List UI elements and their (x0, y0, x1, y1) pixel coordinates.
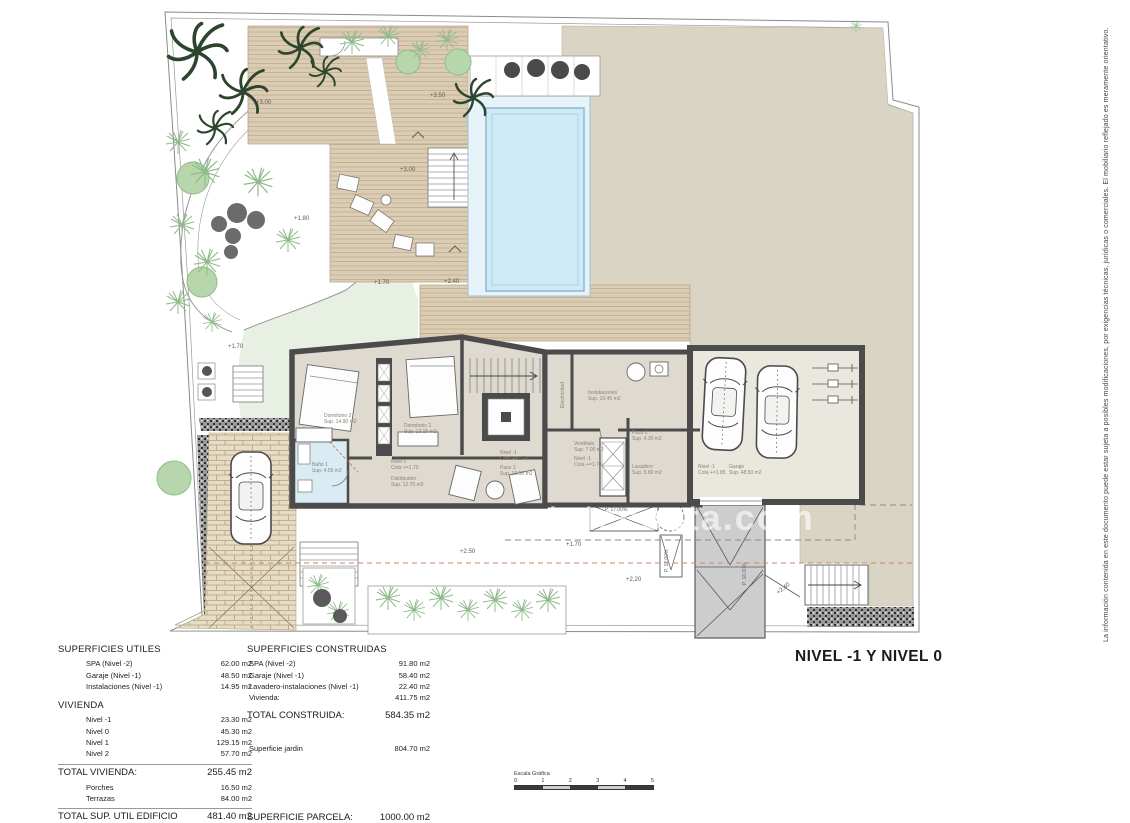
table-row: Superficie jardin804.70 m2 (247, 743, 430, 754)
scale-tick: 0 (514, 778, 517, 784)
table-row: SPA (Nivel -2)91.80 m2 (247, 658, 430, 669)
table-row: Nivel 1129.15 m2 (58, 737, 252, 748)
table-title: SUPERFICIES UTILES (58, 644, 252, 655)
elevation-label: +1.70 (374, 280, 389, 286)
room-label-instalaciones: InstalacionesSup. 10.45 m2 (588, 390, 621, 402)
table-total-row: TOTAL VIVIENDA:255.45 m2 (58, 764, 252, 778)
table-superficies-construidas: SUPERFICIES CONSTRUIDAS SPA (Nivel -2)91… (247, 644, 430, 823)
scale-bar-label: Escala Gráfica (514, 771, 654, 777)
page-title: NIVEL -1 Y NIVEL 0 (795, 648, 942, 666)
elevation-label: +3.00 (400, 167, 415, 173)
table-row: Garaje (Nivel -1)48.50 m2 (58, 669, 252, 680)
table-row: Instalaciones (Nivel -1)14.95 m2 (58, 681, 252, 692)
table-section-title: VIVIENDA (58, 700, 252, 711)
table-row: Nivel 045.30 m2 (58, 726, 252, 737)
room-label-dormitorio-1: Dormitorio 1Sup. 13.15 m2 (404, 423, 437, 435)
room-label-lavadero: LavaderoSup. 5.80 m2 (632, 464, 662, 476)
scale-tick: 3 (596, 778, 599, 784)
level-label-garaje: Nivel -1Cota +=1.85 (698, 464, 726, 476)
table-row: SPA (Nivel -2)62.00 m2 (58, 658, 252, 669)
room-label-distribuidor: DistribuidorSup. 12.70 m2 (391, 476, 424, 488)
elevation-label: +1.70 (228, 344, 243, 350)
elevation-label: +1.70 (566, 542, 581, 548)
room-label-paso-2: Paso 2Sup. 4.30 m2 (632, 430, 662, 442)
room-label-vestibulo: VestibuloSup. 7.00 m2 (574, 441, 604, 453)
level-label-vestibulo: Nivel -1Cota +=1.70 (574, 456, 602, 468)
level-label-nivel-0: Nivel 0Cota +=1.70 (391, 459, 419, 471)
table-total-row: TOTAL CONSTRUIDA:584.35 m2 (247, 708, 430, 721)
table-row: Porches16.50 m2 (58, 782, 252, 793)
table-row: Nivel 257.70 m2 (58, 748, 252, 759)
building (292, 337, 862, 506)
table-row: Lavadero-instalaciones (Nivel -1)22.40 m… (247, 681, 430, 692)
slope-label: P. 12.00% (664, 550, 670, 572)
table-total-row: SUPERFICIE PARCELA:1000.00 m2 (247, 810, 430, 823)
scale-tick: 5 (651, 778, 654, 784)
scale-bar-ticks: 0 1 2 3 4 5 (514, 778, 654, 784)
elevation-label: +2.50 (460, 549, 475, 555)
elevation-label: +1.80 (294, 216, 309, 222)
slope-label: P. 16.00% (742, 563, 748, 585)
scale-tick: 4 (624, 778, 627, 784)
plan-sheet: Dormitorio 2Sup. 14.90 m2 Dormitorio 1Su… (0, 0, 1130, 823)
right-stairs (805, 565, 868, 605)
elevation-label: +3.00 (256, 100, 271, 106)
table-superficies-utiles: SUPERFICIES UTILES SPA (Nivel -2)62.00 m… (58, 644, 252, 822)
elevation-label: +3.50 (430, 93, 445, 99)
top-planter (470, 56, 600, 96)
table-row: Terrazas84.00 m2 (58, 793, 252, 804)
elevation-label: +2.20 (626, 577, 641, 583)
watermark: www.estatecosta.com (402, 497, 815, 539)
table-total-row: TOTAL SUP. UTIL EDIFICIO481.40 m2 (58, 808, 252, 822)
scale-bar-segments (514, 785, 654, 790)
scale-tick: 2 (569, 778, 572, 784)
room-label-bano-1: Baño 1Sup. 4.55 m2 (312, 462, 342, 474)
room-label-dormitorio-2: Dormitorio 2Sup. 14.90 m2 (324, 413, 357, 425)
table-row: Vivienda:411.75 m2 (247, 692, 430, 703)
table-row: Garaje (Nivel -1)58.40 m2 (247, 669, 430, 680)
room-label-electricidad: Electricidad (560, 382, 566, 408)
room-label-paso-1: Paso 1Sup. 10.50 m2 (500, 465, 533, 477)
table-title: SUPERFICIES CONSTRUIDAS (247, 644, 430, 655)
disclaimer-text: La información contenida en este documen… (1103, 27, 1110, 642)
scale-tick: 1 (541, 778, 544, 784)
room-label-garaje: GarajeSup. 48.50 m2 (729, 464, 762, 476)
scale-bar: Escala Gráfica 0 1 2 3 4 5 (514, 771, 654, 790)
pool (468, 96, 590, 296)
level-label-paso-1: Nivel -1Cota +=1.70 (500, 450, 528, 462)
table-row: Nivel -123.30 m2 (58, 714, 252, 725)
elevation-label: +2.40 (444, 279, 459, 285)
